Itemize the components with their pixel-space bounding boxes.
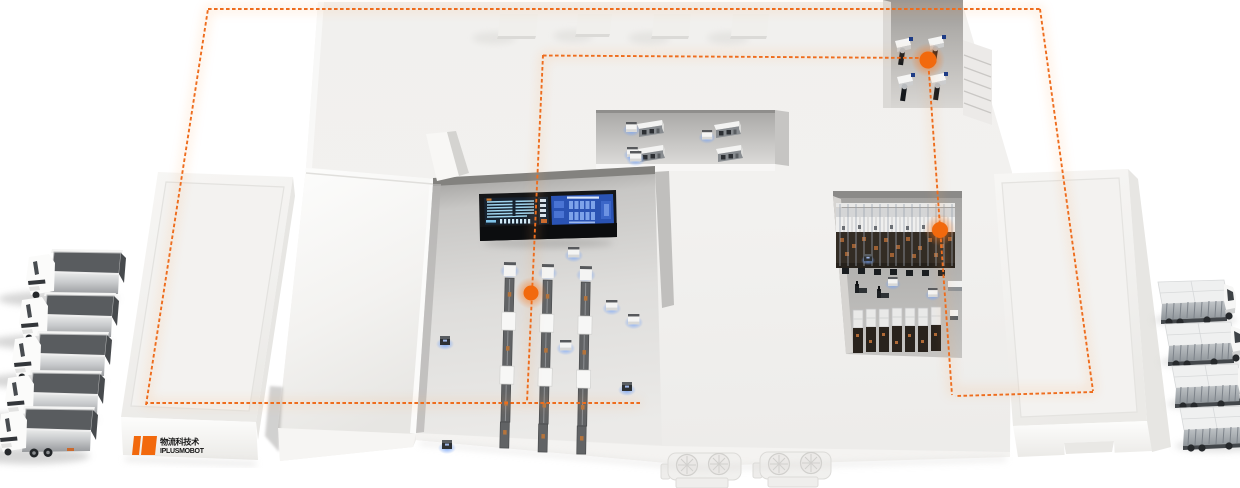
svg-text:物流科技术: 物流科技术 <box>160 437 200 447</box>
svg-text:IPLUSMOBOT: IPLUSMOBOT <box>160 448 205 455</box>
